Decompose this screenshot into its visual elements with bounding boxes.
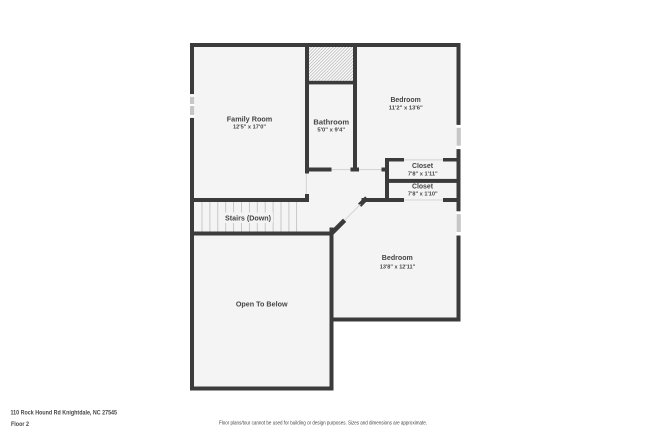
svg-text:Closet: Closet — [412, 163, 434, 170]
svg-text:11'2" x 13'6": 11'2" x 13'6" — [389, 105, 423, 111]
svg-text:Family Room: Family Room — [227, 114, 273, 123]
svg-text:Closet: Closet — [412, 184, 434, 191]
svg-text:7'8" x 1'11": 7'8" x 1'11" — [408, 172, 438, 178]
svg-text:Open To Below: Open To Below — [236, 300, 288, 309]
svg-text:Bathroom: Bathroom — [313, 117, 349, 126]
svg-text:Floor 2: Floor 2 — [11, 421, 29, 428]
svg-text:Bedroom: Bedroom — [382, 253, 413, 262]
svg-text:12'5" x 17'0": 12'5" x 17'0" — [233, 125, 266, 131]
svg-text:13'8" x 12'11": 13'8" x 12'11" — [380, 265, 416, 271]
svg-text:5'0" x 9'4": 5'0" x 9'4" — [317, 128, 345, 134]
svg-text:110 Rock Hound Rd Knightdale,: 110 Rock Hound Rd Knightdale, NC 27545 — [11, 409, 118, 416]
svg-text:Stairs (Down): Stairs (Down) — [225, 214, 271, 223]
svg-text:7'8" x 1'10": 7'8" x 1'10" — [408, 192, 438, 198]
svg-text:Floor plans/tour cannot be use: Floor plans/tour cannot be used for buil… — [219, 421, 427, 427]
svg-text:Bedroom: Bedroom — [390, 95, 421, 104]
